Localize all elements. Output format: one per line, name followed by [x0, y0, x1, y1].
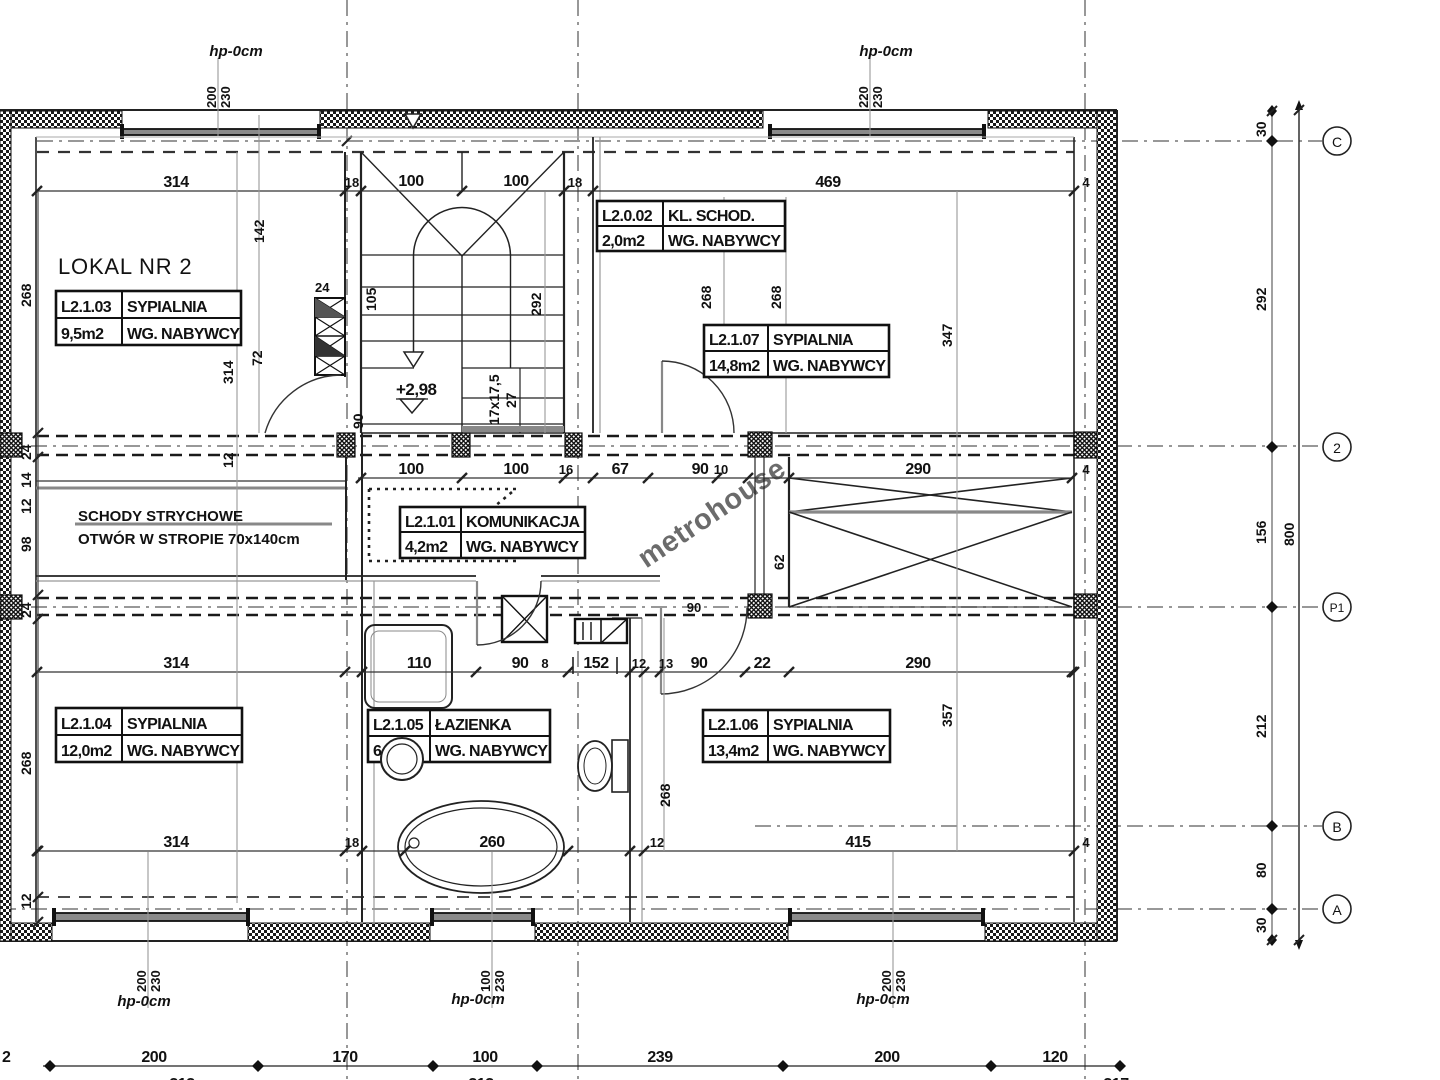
svg-text:2: 2	[2, 1049, 11, 1066]
svg-text:260: 260	[479, 834, 505, 851]
svg-text:200: 200	[879, 970, 894, 992]
svg-text:230: 230	[893, 970, 908, 992]
svg-text:WG. NABYWCY: WG. NABYWCY	[435, 743, 548, 760]
svg-text:80: 80	[1253, 862, 1269, 878]
svg-text:100: 100	[478, 970, 493, 992]
svg-text:14: 14	[18, 472, 34, 488]
svg-text:100: 100	[503, 461, 529, 478]
svg-text:230: 230	[218, 86, 233, 108]
svg-text:30: 30	[1253, 121, 1269, 137]
svg-text:hp-0cm: hp-0cm	[859, 43, 912, 60]
svg-text:110: 110	[407, 655, 432, 672]
svg-text:L2.0.02: L2.0.02	[602, 208, 653, 225]
svg-text:67: 67	[612, 461, 629, 478]
svg-text:90: 90	[687, 600, 701, 615]
svg-text:100: 100	[398, 173, 424, 190]
svg-text:313: 313	[468, 1076, 494, 1080]
svg-text:C: C	[1332, 134, 1342, 150]
svg-text:SYPIALNIA: SYPIALNIA	[773, 717, 854, 734]
svg-text:90: 90	[691, 655, 708, 672]
svg-text:314: 314	[163, 655, 189, 672]
svg-text:WG. NABYWCY: WG. NABYWCY	[773, 743, 886, 760]
svg-text:100: 100	[398, 461, 424, 478]
svg-text:12,0m2: 12,0m2	[61, 743, 112, 760]
svg-text:4: 4	[1082, 462, 1090, 477]
svg-text:268: 268	[768, 285, 784, 309]
svg-text:L2.1.06: L2.1.06	[708, 717, 759, 734]
svg-text:200: 200	[141, 1049, 167, 1066]
svg-text:90: 90	[350, 413, 366, 429]
svg-text:170: 170	[332, 1049, 358, 1066]
svg-text:4: 4	[1082, 175, 1090, 190]
svg-text:ŁAZIENKA: ŁAZIENKA	[435, 717, 512, 734]
svg-text:469: 469	[815, 174, 841, 191]
svg-text:98: 98	[18, 536, 34, 552]
svg-text:22: 22	[754, 655, 771, 672]
svg-text:SYPIALNIA: SYPIALNIA	[773, 332, 854, 349]
svg-text:2,0m2: 2,0m2	[602, 233, 645, 250]
svg-text:292: 292	[528, 292, 544, 316]
svg-text:SCHODY STRYCHOWE: SCHODY STRYCHOWE	[78, 508, 243, 525]
svg-text:24: 24	[315, 280, 330, 295]
svg-text:9,5m2: 9,5m2	[61, 326, 104, 343]
svg-text:415: 415	[845, 834, 871, 851]
svg-text:24: 24	[18, 444, 34, 460]
svg-text:357: 357	[939, 703, 955, 727]
svg-text:12: 12	[650, 835, 664, 850]
svg-text:24: 24	[18, 602, 34, 618]
svg-text:268: 268	[657, 783, 673, 807]
svg-text:WG. NABYWCY: WG. NABYWCY	[127, 326, 240, 343]
svg-text:12: 12	[18, 498, 34, 514]
svg-text:SYPIALNIA: SYPIALNIA	[127, 299, 208, 316]
svg-text:72: 72	[249, 350, 265, 366]
svg-text:2: 2	[1333, 440, 1341, 456]
svg-text:L2.1.05: L2.1.05	[373, 717, 424, 734]
svg-text:120: 120	[1042, 1049, 1068, 1066]
svg-text:212: 212	[1253, 714, 1269, 738]
svg-text:4,2m2: 4,2m2	[405, 539, 448, 556]
svg-text:313: 313	[169, 1076, 195, 1080]
svg-text:62: 62	[771, 554, 787, 570]
svg-text:12: 12	[632, 656, 646, 671]
svg-text:13: 13	[659, 656, 673, 671]
svg-text:hp-0cm: hp-0cm	[209, 43, 262, 60]
svg-text:230: 230	[148, 970, 163, 992]
svg-text:268: 268	[18, 283, 34, 307]
svg-text:L2.1.04: L2.1.04	[61, 716, 112, 733]
svg-text:347: 347	[939, 323, 955, 347]
svg-text:KOMUNIKACJA: KOMUNIKACJA	[466, 514, 580, 531]
svg-text:16: 16	[559, 462, 573, 477]
svg-text:239: 239	[647, 1049, 673, 1066]
svg-text:268: 268	[698, 285, 714, 309]
svg-text:P1: P1	[1330, 601, 1345, 615]
svg-text:18: 18	[345, 175, 359, 190]
svg-text:800: 800	[1281, 522, 1297, 546]
svg-text:142: 142	[251, 219, 267, 243]
svg-text:hp-0cm: hp-0cm	[856, 991, 909, 1008]
svg-text:200: 200	[874, 1049, 900, 1066]
svg-text:17x17,5: 17x17,5	[486, 374, 502, 425]
svg-text:292: 292	[1253, 287, 1269, 311]
svg-text:100: 100	[472, 1049, 498, 1066]
svg-text:290: 290	[905, 655, 931, 672]
svg-text:WG. NABYWCY: WG. NABYWCY	[668, 233, 781, 250]
svg-text:314: 314	[163, 174, 189, 191]
svg-text:12: 12	[18, 893, 34, 909]
svg-text:12: 12	[220, 452, 236, 468]
svg-text:230: 230	[870, 86, 885, 108]
svg-text:156: 156	[1253, 520, 1269, 544]
svg-text:B: B	[1332, 819, 1341, 835]
svg-text:4: 4	[1082, 835, 1090, 850]
svg-text:314: 314	[163, 834, 189, 851]
svg-text:27: 27	[503, 392, 519, 408]
svg-text:14,8m2: 14,8m2	[709, 358, 760, 375]
svg-text:WG. NABYWCY: WG. NABYWCY	[773, 358, 886, 375]
svg-text:13,4m2: 13,4m2	[708, 743, 759, 760]
svg-text:200: 200	[204, 86, 219, 108]
svg-text:18: 18	[345, 835, 359, 850]
svg-text:18: 18	[568, 175, 582, 190]
svg-text:10: 10	[714, 462, 728, 477]
svg-text:OTWÓR W STROPIE 70x140cm: OTWÓR W STROPIE 70x140cm	[78, 530, 300, 548]
svg-text:A: A	[1332, 902, 1342, 918]
svg-text:314: 314	[220, 360, 236, 384]
svg-text:KL. SCHOD.: KL. SCHOD.	[668, 208, 755, 225]
svg-text:8: 8	[541, 656, 548, 671]
svg-text:hp-0cm: hp-0cm	[117, 993, 170, 1010]
svg-text:WG. NABYWCY: WG. NABYWCY	[466, 539, 579, 556]
svg-text:hp-0cm: hp-0cm	[451, 991, 504, 1008]
svg-text:317: 317	[1103, 1076, 1129, 1080]
svg-text:L2.1.01: L2.1.01	[405, 514, 456, 531]
svg-text:L2.1.03: L2.1.03	[61, 299, 112, 316]
svg-text:220: 220	[856, 86, 871, 108]
svg-text:268: 268	[18, 751, 34, 775]
svg-text:200: 200	[134, 970, 149, 992]
svg-text:105: 105	[363, 287, 379, 311]
svg-text:WG. NABYWCY: WG. NABYWCY	[127, 743, 240, 760]
svg-text:230: 230	[492, 970, 507, 992]
svg-text:90: 90	[512, 655, 529, 672]
svg-text:152: 152	[583, 655, 609, 672]
svg-text:90: 90	[692, 461, 709, 478]
svg-text:30: 30	[1253, 917, 1269, 933]
svg-text:100: 100	[503, 173, 529, 190]
svg-text:SYPIALNIA: SYPIALNIA	[127, 716, 208, 733]
svg-text:L2.1.07: L2.1.07	[709, 332, 760, 349]
svg-text:290: 290	[905, 461, 931, 478]
svg-text:+2,98: +2,98	[396, 380, 437, 399]
svg-text:LOKAL NR 2: LOKAL NR 2	[58, 254, 192, 279]
